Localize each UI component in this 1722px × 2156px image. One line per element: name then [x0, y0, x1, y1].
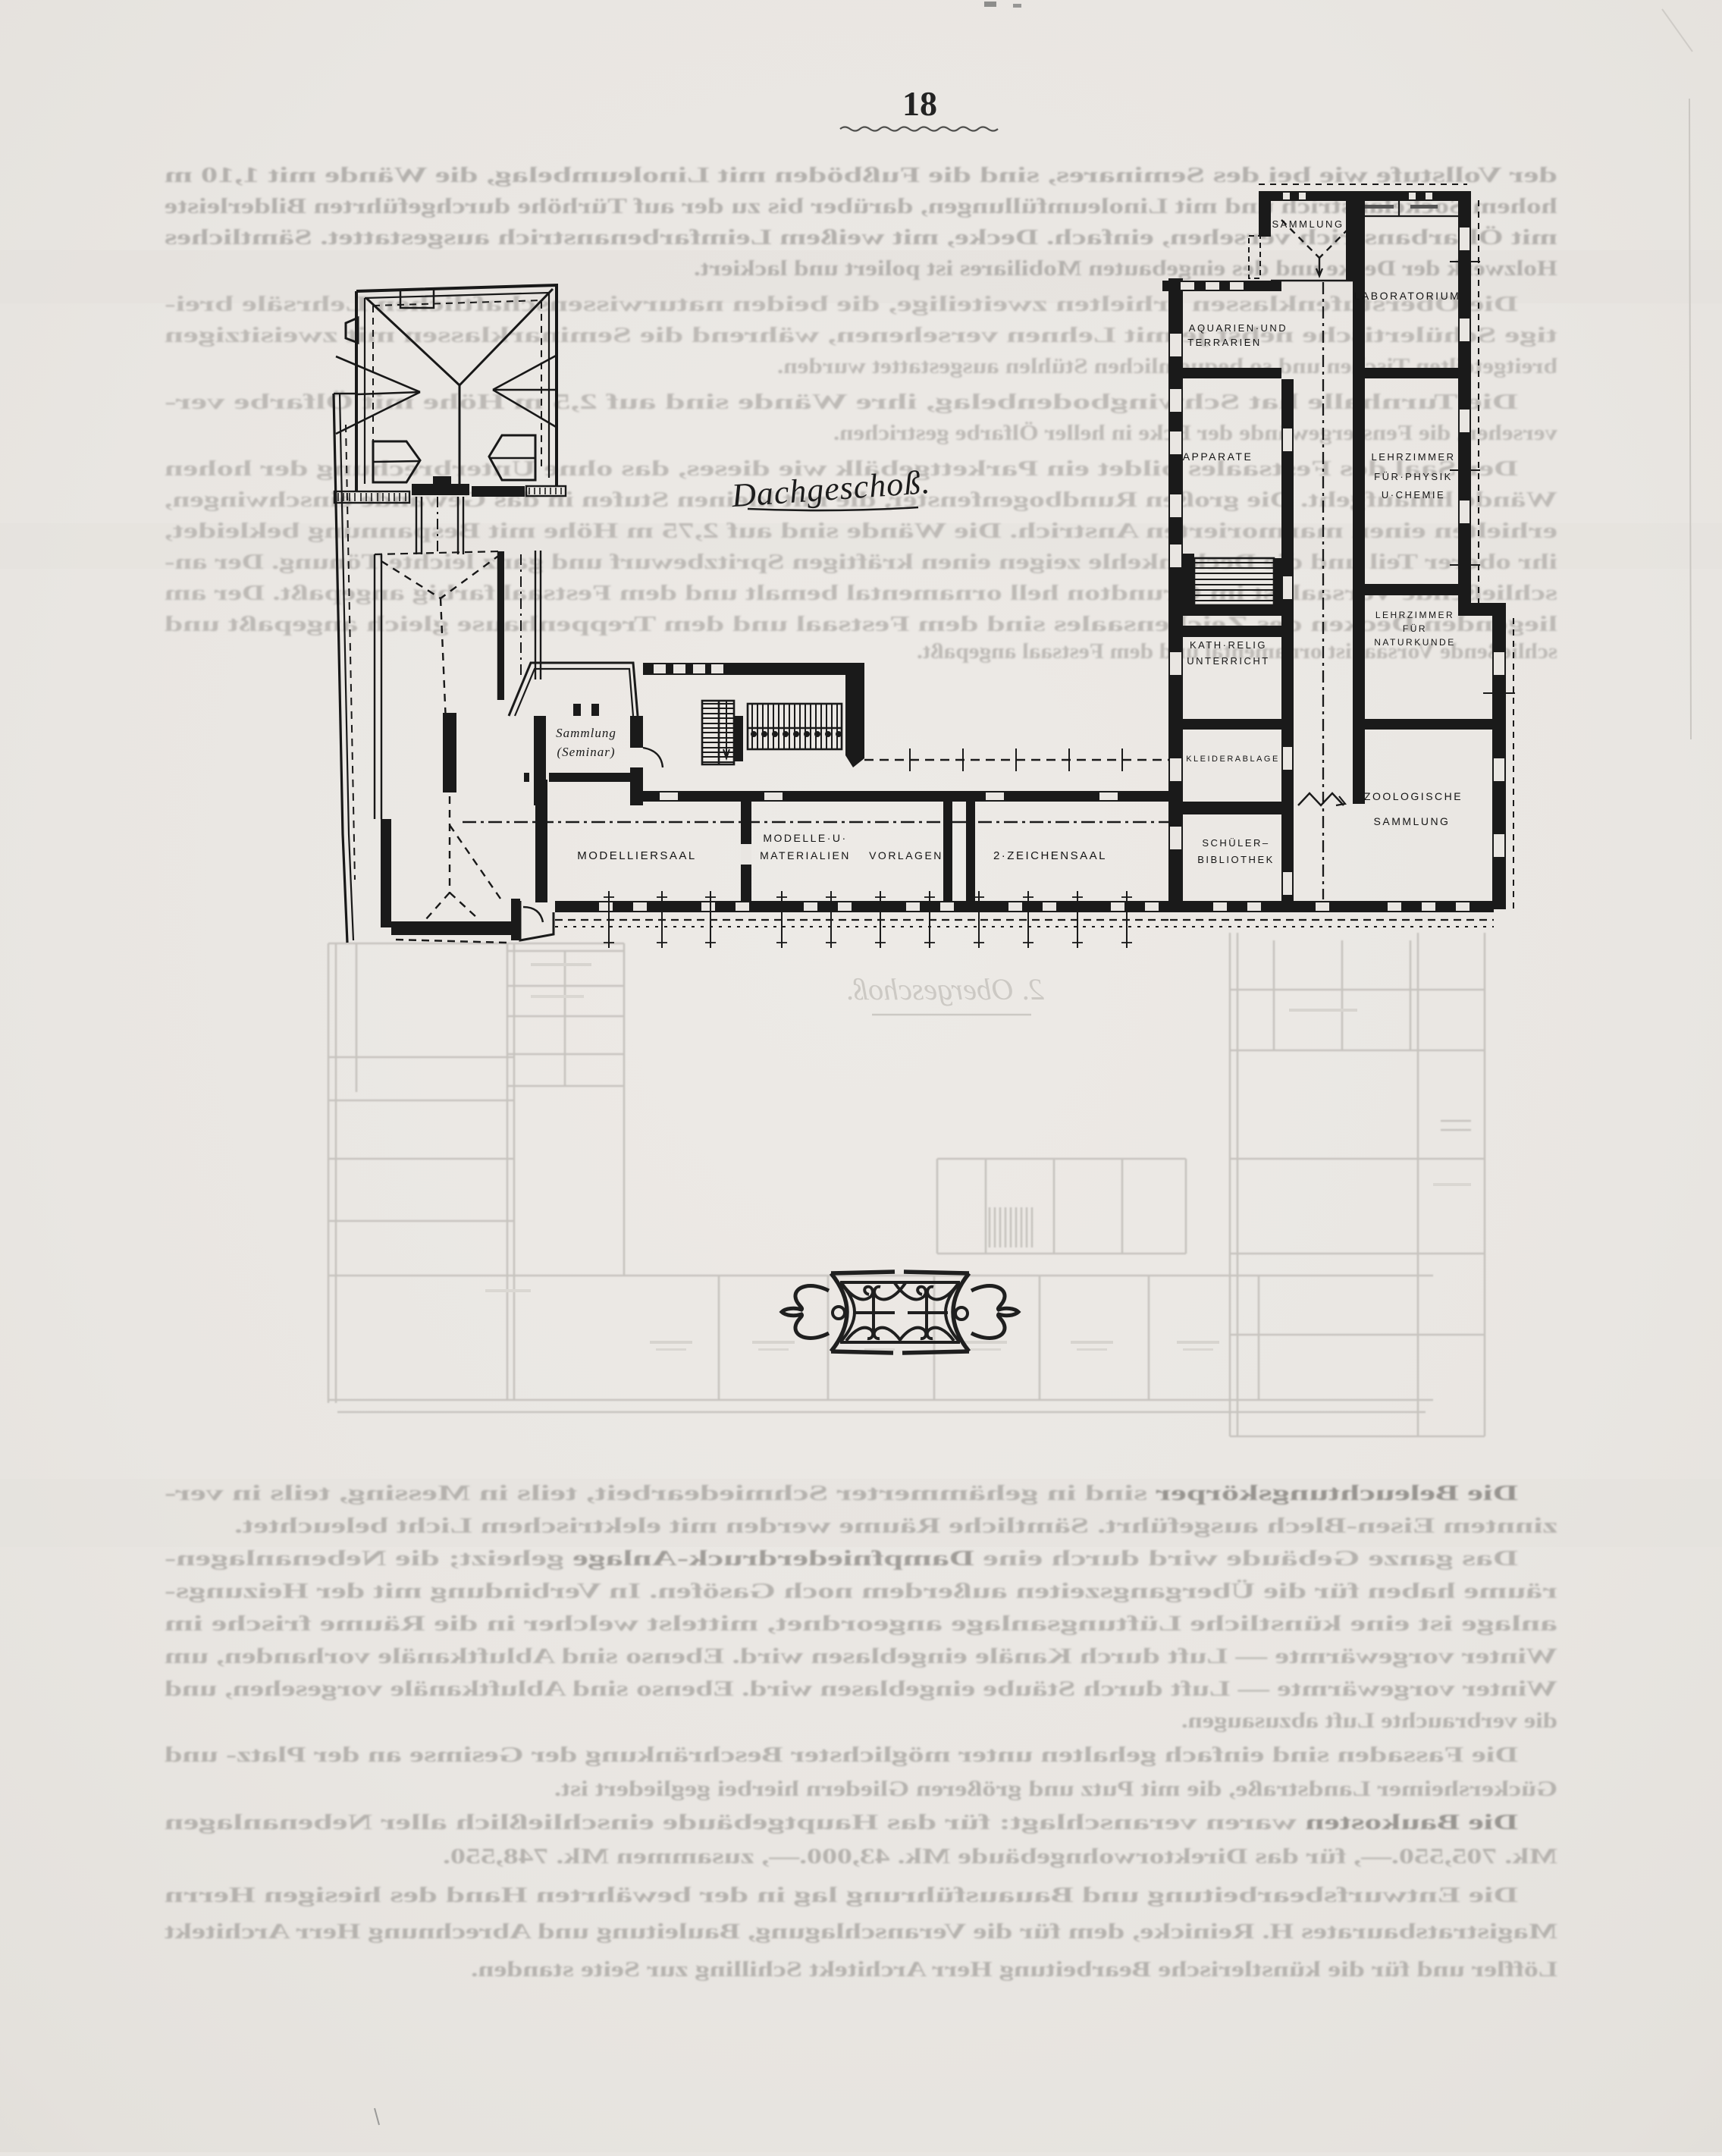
svg-text:Mk. 705,550.—, für das Direkto: Mk. 705,550.—, für das Direktorwohngebäu…: [443, 1844, 1557, 1869]
svg-text:Magistratsbaurates H. Reinicke: Magistratsbaurates H. Reinicke, dem für …: [165, 1919, 1557, 1944]
svg-text:die verbrauchte Luft abzusauge: die verbrauchte Luft abzusaugen.: [1181, 1709, 1557, 1733]
svg-text:2. Obergeschoß.: 2. Obergeschoß.: [845, 972, 1044, 1006]
svg-text:FÜR·PHYSIK: FÜR·PHYSIK: [1374, 471, 1453, 482]
svg-text:erhielten einen marmorierten A: erhielten einen marmorierten Anstrich. D…: [165, 519, 1557, 543]
svg-text:UNTERRICHT: UNTERRICHT: [1187, 655, 1270, 667]
svg-text:FÜR: FÜR: [1403, 623, 1427, 634]
svg-text:VORLAGEN: VORLAGEN: [869, 849, 943, 861]
svg-text:MATERIALIEN: MATERIALIEN: [760, 849, 851, 861]
svg-text:Die Entwurfsbearbeitung und Ba: Die Entwurfsbearbeitung und Bauausführun…: [165, 1883, 1518, 1907]
svg-text:KLEIDERABLAGE: KLEIDERABLAGE: [1186, 755, 1280, 764]
svg-text:Die Oberstufenklassen erhielte: Die Oberstufenklassen erhielten zweiteil…: [165, 292, 1518, 316]
svg-text:zinntem Eisen-Blech ausgeführt: zinntem Eisen-Blech ausgeführt. Sämtlich…: [234, 1514, 1557, 1538]
svg-text:MODELLIERSAAL: MODELLIERSAAL: [577, 849, 697, 862]
svg-text:Sammlung: Sammlung: [556, 726, 616, 740]
svg-text:Die Baukosten waren veranschla: Die Baukosten waren veranschlagt: für da…: [165, 1810, 1518, 1834]
svg-text:Winter vorgewärmte — Luft durc: Winter vorgewärmte — Luft durch Stäube e…: [165, 1677, 1557, 1701]
svg-text:der Vollstufe wie bei des Semi: der Vollstufe wie bei des Seminares, sin…: [165, 163, 1557, 187]
svg-text:Das ganze Gebäude wird durch e: Das ganze Gebäude wird durch eine Dampfn…: [165, 1546, 1518, 1571]
svg-text:anlage ist eine künstliche Lüf: anlage ist eine künstliche Lüftungsanlag…: [165, 1612, 1557, 1636]
svg-text:Löffler und für die künstleris: Löffler und für die künstlerische Bearbe…: [471, 1957, 1557, 1982]
svg-text:LEHRZIMMER: LEHRZIMMER: [1375, 610, 1454, 620]
svg-text:MODELLE·U·: MODELLE·U·: [763, 832, 847, 844]
svg-text:Die Beleuchtungskörper sind in: Die Beleuchtungskörper sind in gehämmert…: [165, 1481, 1518, 1505]
svg-text:LEHRZIMMER: LEHRZIMMER: [1372, 451, 1456, 463]
svg-text:(Seminar): (Seminar): [557, 745, 616, 759]
svg-text:TERRARIEN: TERRARIEN: [1187, 337, 1262, 348]
svg-text:U·CHEMIE: U·CHEMIE: [1382, 489, 1445, 501]
svg-text:Gückersheimer Landstraße, die: Gückersheimer Landstraße, die mit Putz u…: [554, 1777, 1557, 1801]
svg-text:KATH·RELIG: KATH·RELIG: [1190, 639, 1267, 651]
svg-text:AQUARIEN·UND: AQUARIEN·UND: [1189, 322, 1288, 334]
svg-text:18: 18: [902, 84, 937, 123]
svg-text:SAMMLUNG: SAMMLUNG: [1272, 218, 1344, 230]
svg-text:Winter vorgewärmte — Luft durc: Winter vorgewärmte — Luft durch Kanäle e…: [165, 1644, 1557, 1668]
svg-text:schließende Vorsaal ist im Gru: schließende Vorsaal ist im Grundton hell…: [165, 581, 1557, 605]
svg-text:LABORATORIUM: LABORATORIUM: [1354, 290, 1461, 302]
svg-text:BIBLIOTHEK: BIBLIOTHEK: [1197, 854, 1275, 865]
svg-text:liegenden Decken des Zeichensa: liegenden Decken des Zeichensaales sind …: [165, 612, 1557, 636]
svg-text:räume haben für die Übergangsz: räume haben für die Übergangszeiten auße…: [165, 1579, 1557, 1603]
svg-text:2·ZEICHENSAAL: 2·ZEICHENSAAL: [993, 849, 1107, 862]
svg-text:ihr oberer Teil und die Decken: ihr oberer Teil und die Deckenkehle zeig…: [165, 550, 1557, 574]
svg-text:NATURKUNDE: NATURKUNDE: [1374, 637, 1455, 648]
svg-text:APPARATE: APPARATE: [1183, 450, 1253, 463]
svg-text:SAMMLUNG: SAMMLUNG: [1374, 815, 1451, 827]
svg-text:versehen, die Fenstergewände d: versehen, die Fenstergewände der Ecke in…: [833, 421, 1557, 445]
svg-text:Die Fassaden sind einfach geha: Die Fassaden sind einfach gehalten unter…: [165, 1743, 1518, 1767]
svg-text:SCHÜLER–: SCHÜLER–: [1202, 837, 1269, 849]
svg-text:ZOOLOGISCHE: ZOOLOGISCHE: [1364, 790, 1463, 802]
svg-text:Holzwerk der Decke und des ein: Holzwerk der Decke und des eingebauten M…: [694, 256, 1557, 281]
